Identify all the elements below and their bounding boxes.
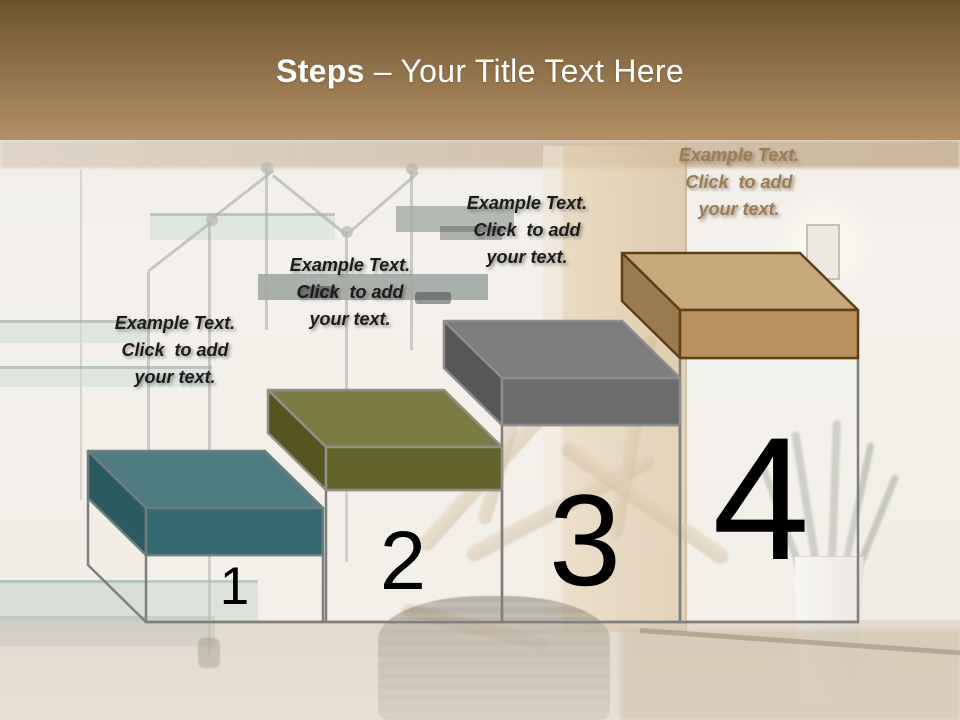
label-line: your text. xyxy=(70,364,280,391)
label-line: Click to add xyxy=(245,279,455,306)
title-bar: Steps– Your Title Text Here xyxy=(0,0,960,140)
step-4-front-face xyxy=(680,310,858,358)
slide-title[interactable]: Steps– Your Title Text Here xyxy=(0,53,960,90)
slide: 1 2 3 4 Example Text. Click to add your … xyxy=(0,0,960,720)
label-line: Example Text. xyxy=(422,190,632,217)
step-1-front-face xyxy=(146,508,323,555)
label-line: your text. xyxy=(422,244,632,271)
step-2-slab xyxy=(268,390,502,490)
title-topic: Steps xyxy=(276,53,365,89)
label-line: your text. xyxy=(245,306,455,333)
step-1-slab xyxy=(88,451,323,555)
step-2-number: 2 xyxy=(314,519,492,602)
label-line: Click to add xyxy=(422,217,632,244)
label-line: your text. xyxy=(634,196,844,223)
step-2-front-face xyxy=(326,447,502,490)
label-line: Click to add xyxy=(634,169,844,196)
step-3-slab xyxy=(444,321,680,425)
step-3-text-placeholder[interactable]: Example Text. Click to add your text. xyxy=(422,190,632,271)
step-4-slab xyxy=(622,253,858,358)
step-4-number: 4 xyxy=(672,412,850,587)
step-4-text-placeholder[interactable]: Example Text. Click to add your text. xyxy=(634,142,844,223)
step-1-number: 1 xyxy=(146,560,323,613)
title-text: – Your Title Text Here xyxy=(374,53,684,89)
step-3-front-face xyxy=(502,378,680,425)
label-line: Example Text. xyxy=(634,142,844,169)
label-line: Click to add xyxy=(70,337,280,364)
step-3-number: 3 xyxy=(496,475,674,605)
